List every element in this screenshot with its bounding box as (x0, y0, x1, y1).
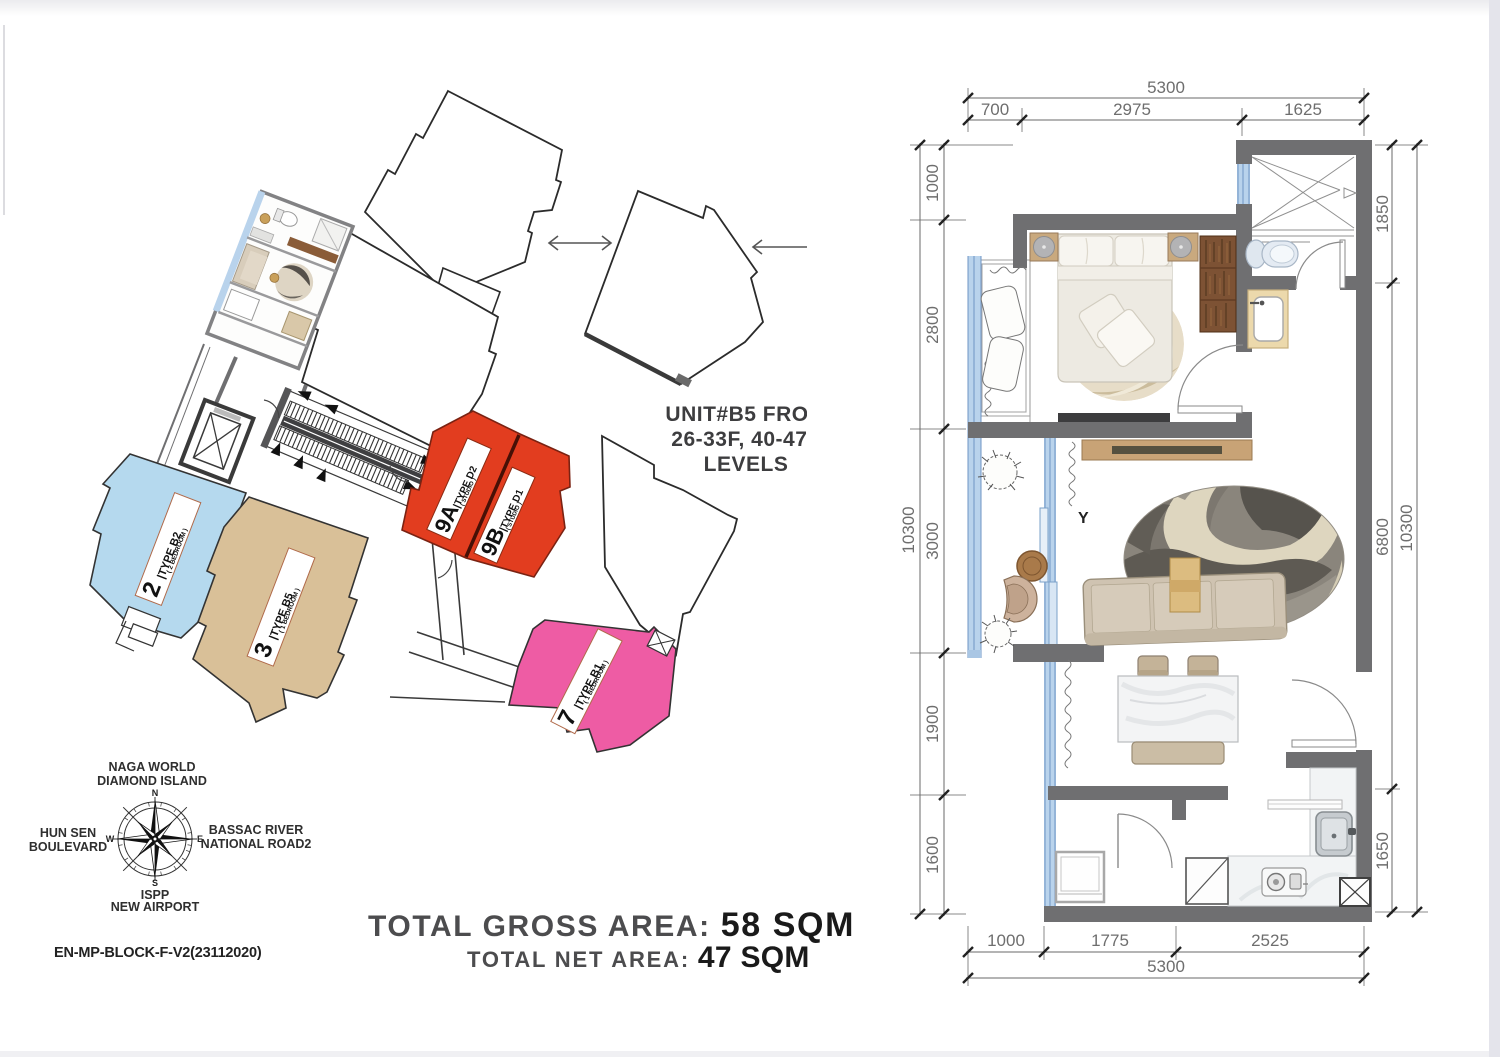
svg-text:DIAMOND ISLAND: DIAMOND ISLAND (97, 774, 207, 788)
svg-text:1000: 1000 (923, 164, 942, 202)
svg-text:6800: 6800 (1373, 518, 1392, 556)
svg-text:1625: 1625 (1284, 100, 1322, 119)
svg-text:2975: 2975 (1113, 100, 1151, 119)
svg-text:HUN SEN: HUN SEN (40, 826, 96, 840)
svg-text:BASSAC RIVER: BASSAC RIVER (209, 823, 303, 837)
svg-text:1600: 1600 (923, 836, 942, 874)
svg-text:LEVELS: LEVELS (704, 453, 789, 476)
svg-text:10300: 10300 (899, 506, 918, 553)
svg-text:EN-MP-BLOCK-F-V2(23112020): EN-MP-BLOCK-F-V2(23112020) (54, 945, 262, 961)
svg-text:NATIONAL ROAD2: NATIONAL ROAD2 (201, 837, 312, 851)
svg-text:NAGA WORLD: NAGA WORLD (108, 760, 195, 774)
svg-text:2525: 2525 (1251, 931, 1289, 950)
svg-text:1650: 1650 (1373, 832, 1392, 870)
svg-text:10300: 10300 (1397, 504, 1416, 551)
svg-text:S: S (152, 878, 158, 888)
svg-text:1900: 1900 (923, 705, 942, 743)
svg-text:UNIT#B5 FROM: UNIT#B5 FROM (665, 403, 826, 426)
svg-text:5300: 5300 (1147, 957, 1185, 976)
svg-text:N: N (152, 788, 159, 798)
svg-text:5300: 5300 (1147, 78, 1185, 97)
svg-text:2800: 2800 (923, 306, 942, 344)
svg-text:BOULEVARD: BOULEVARD (29, 840, 107, 854)
svg-text:26-33F, 40-47F: 26-33F, 40-47F (671, 428, 820, 451)
svg-text:700: 700 (981, 100, 1009, 119)
svg-text:NEW AIRPORT: NEW AIRPORT (111, 900, 200, 914)
svg-text:1000: 1000 (987, 931, 1025, 950)
svg-text:TOTAL GROSS AREA: 58 SQM: TOTAL GROSS AREA: 58 SQM (368, 906, 855, 944)
svg-text:Y: Y (1078, 510, 1089, 527)
svg-text:1850: 1850 (1373, 195, 1392, 233)
svg-text:1775: 1775 (1091, 931, 1129, 950)
svg-text:3000: 3000 (923, 522, 942, 560)
